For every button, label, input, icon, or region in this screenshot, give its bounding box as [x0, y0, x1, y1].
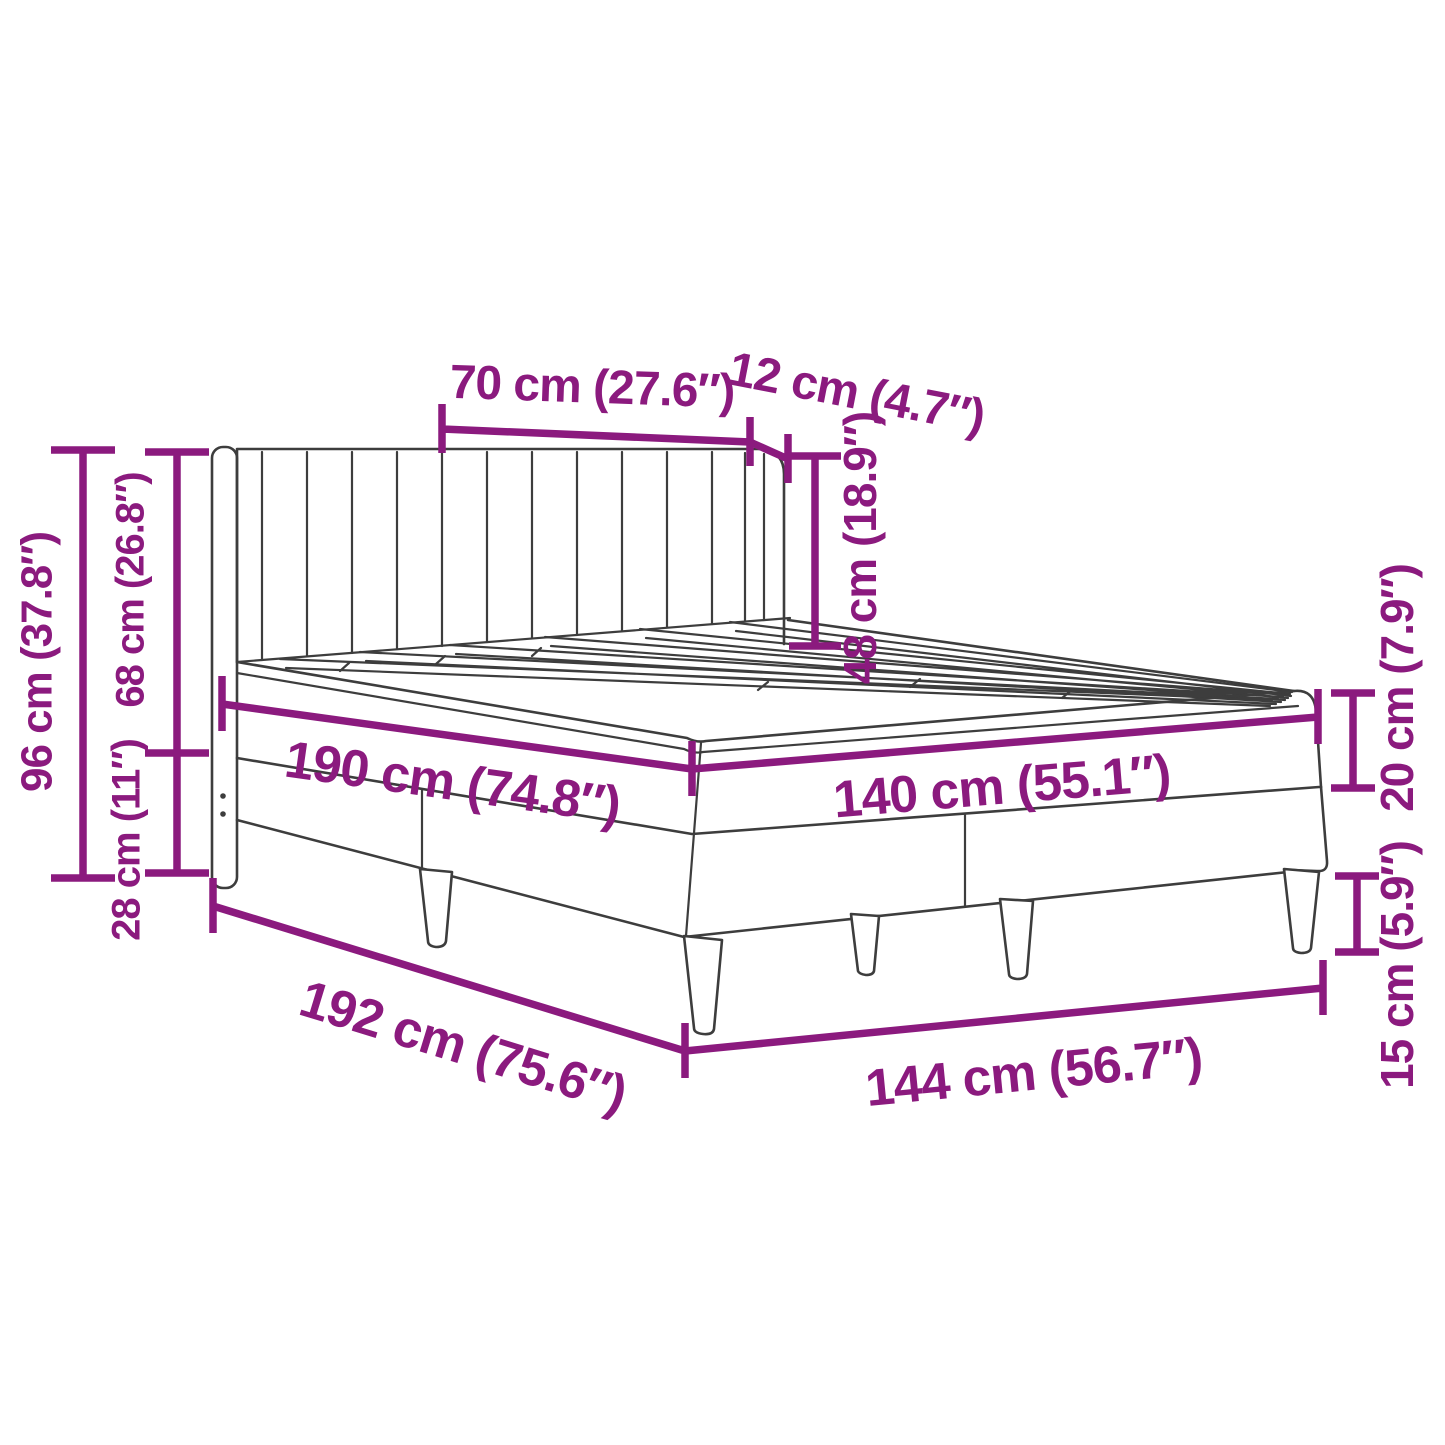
- headboard-front: [237, 449, 784, 662]
- bed-drawing: [212, 447, 1327, 1034]
- dimension-headboard-upper-height: 68 cm (26.8″): [109, 452, 209, 753]
- dimension-line-12cm: [750, 434, 788, 483]
- leg-foot-right: [1284, 869, 1319, 953]
- dimension-line-28cm: [145, 753, 209, 873]
- dimension-label-68cm: 68 cm (26.8″): [109, 472, 153, 707]
- dimension-frame-width: 144 cm (56.7″): [685, 960, 1323, 1118]
- dimension-label-192cm: 192 cm (75.6″): [293, 970, 633, 1124]
- bed-dimension-diagram: 70 cm (27.6″) 12 cm (4.7″) 48 cm (18.9″)…: [0, 0, 1445, 1445]
- dimension-label-144cm: 144 cm (56.7″): [863, 1027, 1205, 1118]
- diagram-page: 70 cm (27.6″) 12 cm (4.7″) 48 cm (18.9″)…: [0, 0, 1445, 1445]
- base-bottom-edge: [237, 820, 1288, 937]
- dimension-label-70cm: 70 cm (27.6″): [449, 356, 736, 419]
- dimension-label-15cm: 15 cm (5.9″): [1371, 841, 1423, 1089]
- headboard-side-panel: [212, 447, 237, 888]
- platform-back-edge: [237, 618, 790, 662]
- leg-front-corner: [684, 936, 722, 1034]
- leg-foot-middle: [1000, 899, 1033, 979]
- dimension-label-190cm: 190 cm (74.8″): [281, 731, 623, 835]
- panel-stud-top: [220, 793, 226, 799]
- dimension-line-20cm: [1331, 693, 1375, 788]
- base-right-edge: [1291, 787, 1327, 871]
- dimension-leg-height: 15 cm (5.9″): [1335, 841, 1423, 1089]
- dimension-headboard-above-platform: 48 cm (18.9″): [789, 412, 886, 684]
- headboard-channel-lines: [262, 452, 764, 660]
- dimension-label-20cm: 20 cm (7.9″): [1371, 564, 1423, 812]
- slat-lines: [280, 622, 1292, 706]
- leg-rear-middle: [851, 914, 879, 975]
- dimension-label-48cm: 48 cm (18.9″): [834, 412, 886, 684]
- dimension-headboard-total-height: 96 cm (37.8″): [13, 450, 115, 878]
- dimension-line-144cm: [685, 960, 1323, 1051]
- dimension-headboard-lower-height: 28 cm (11″): [105, 739, 209, 941]
- dimension-base-top-height: 20 cm (7.9″): [1331, 564, 1423, 812]
- dimension-platform-width: 140 cm (55.1″): [692, 689, 1318, 829]
- panel-stud-bottom: [220, 811, 226, 817]
- dimension-label-96cm: 96 cm (37.8″): [13, 532, 62, 792]
- dimension-line-68cm: [145, 452, 209, 753]
- dimension-label-28cm: 28 cm (11″): [105, 739, 149, 941]
- leg-front-left: [420, 869, 452, 947]
